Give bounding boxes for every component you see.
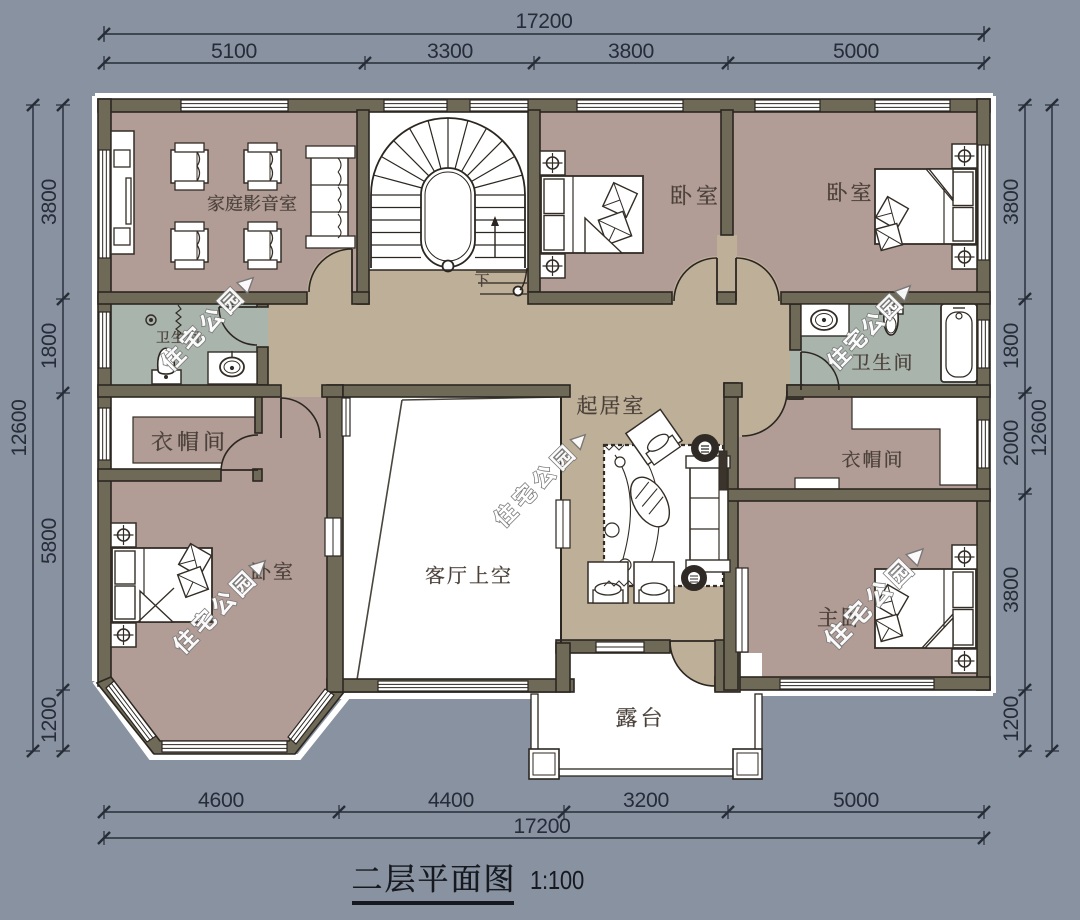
svg-text:3800: 3800 [608, 40, 654, 63]
svg-text:3800: 3800 [1000, 179, 1023, 225]
svg-text:3800: 3800 [38, 179, 61, 225]
svg-text:12600: 12600 [8, 400, 31, 457]
svg-text:5800: 5800 [38, 518, 61, 564]
svg-text:1:100: 1:100 [530, 865, 584, 895]
svg-text:3200: 3200 [623, 789, 669, 812]
svg-text:1800: 1800 [38, 323, 61, 369]
svg-text:4400: 4400 [428, 789, 474, 812]
svg-text:3800: 3800 [1000, 567, 1023, 613]
svg-text:4600: 4600 [198, 789, 244, 812]
svg-text:5100: 5100 [211, 40, 257, 63]
svg-text:17200: 17200 [514, 815, 571, 838]
svg-text:1200: 1200 [1000, 696, 1023, 742]
svg-text:3300: 3300 [427, 40, 473, 63]
svg-text:5000: 5000 [833, 40, 879, 63]
svg-text:2000: 2000 [1000, 420, 1023, 466]
svg-text:5000: 5000 [833, 789, 879, 812]
svg-text:1200: 1200 [38, 697, 61, 743]
svg-text:1800: 1800 [1000, 323, 1023, 369]
svg-text:17200: 17200 [516, 10, 573, 33]
svg-text:12600: 12600 [1028, 400, 1051, 457]
